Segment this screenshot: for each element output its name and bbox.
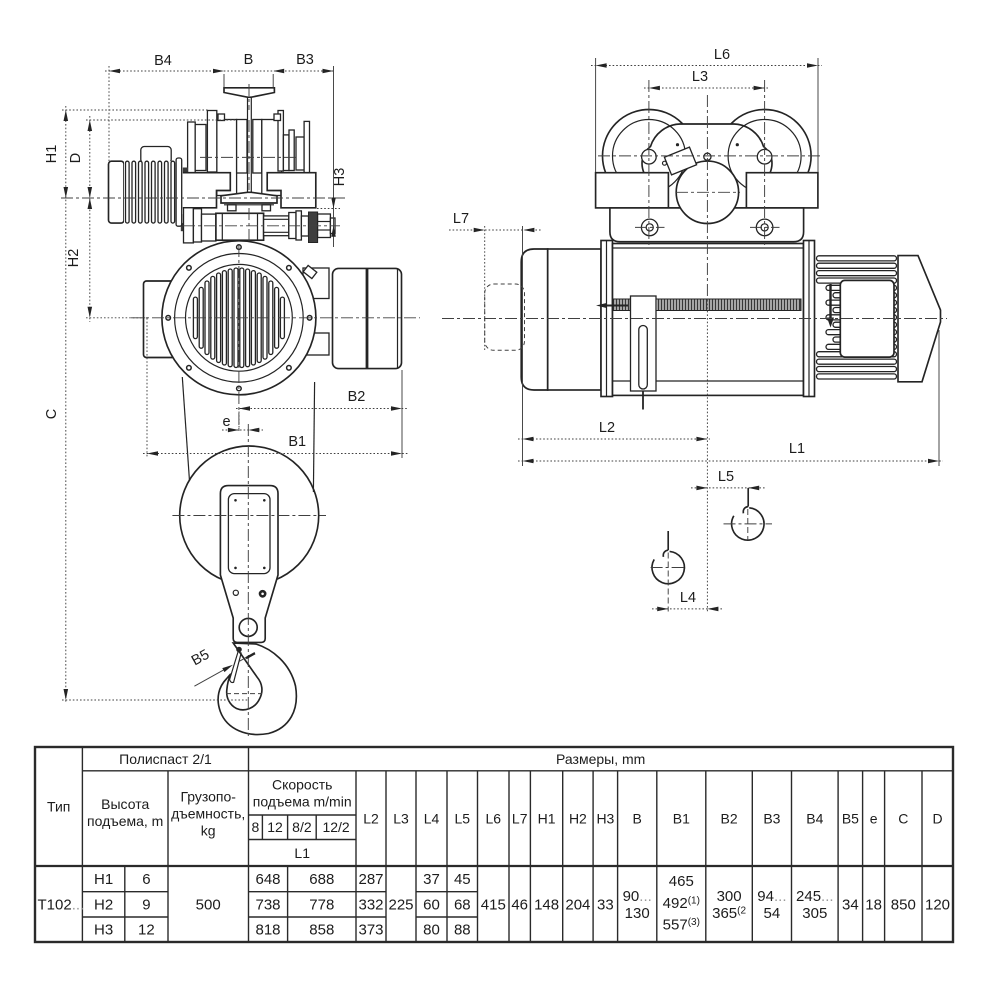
- svg-text:90...: 90...: [623, 888, 652, 905]
- svg-text:Тип: Тип: [47, 799, 70, 815]
- svg-text:H3: H3: [596, 811, 614, 827]
- svg-text:332: 332: [358, 896, 383, 913]
- svg-text:45: 45: [454, 871, 471, 888]
- svg-text:H2: H2: [569, 811, 587, 827]
- svg-text:850: 850: [891, 896, 916, 913]
- svg-text:225: 225: [388, 896, 413, 913]
- svg-text:818: 818: [255, 922, 280, 939]
- svg-text:648: 648: [255, 871, 280, 888]
- svg-text:D: D: [932, 811, 942, 827]
- svg-text:37: 37: [423, 871, 440, 888]
- svg-text:8/2: 8/2: [292, 819, 312, 835]
- svg-text:287: 287: [358, 871, 383, 888]
- svg-text:L6: L6: [486, 811, 502, 827]
- svg-text:858: 858: [309, 922, 334, 939]
- svg-text:130: 130: [625, 905, 650, 922]
- svg-text:L3: L3: [692, 69, 708, 85]
- svg-text:L1: L1: [294, 845, 310, 861]
- svg-text:B5: B5: [842, 811, 859, 827]
- svg-text:738: 738: [255, 896, 280, 913]
- svg-text:D: D: [68, 153, 84, 163]
- svg-text:L2: L2: [599, 420, 615, 436]
- svg-text:688: 688: [309, 871, 334, 888]
- svg-text:L1: L1: [789, 441, 805, 457]
- svg-text:6: 6: [142, 871, 150, 888]
- svg-text:94...: 94...: [757, 888, 786, 905]
- svg-text:245...: 245...: [796, 888, 834, 905]
- svg-text:kg: kg: [201, 823, 216, 839]
- svg-text:B4: B4: [154, 53, 172, 69]
- svg-text:305: 305: [802, 905, 827, 922]
- svg-text:L5: L5: [455, 811, 471, 827]
- svg-text:L6: L6: [714, 47, 730, 63]
- svg-text:778: 778: [309, 896, 334, 913]
- svg-text:H3: H3: [332, 168, 348, 187]
- svg-text:46: 46: [511, 896, 528, 913]
- svg-text:34: 34: [842, 896, 859, 913]
- svg-text:B2: B2: [348, 389, 366, 405]
- svg-text:e: e: [222, 414, 230, 430]
- svg-text:500: 500: [196, 896, 221, 913]
- svg-text:H3: H3: [94, 922, 113, 939]
- svg-text:L2: L2: [363, 811, 379, 827]
- svg-text:C: C: [898, 811, 908, 827]
- svg-text:подъема, m: подъема, m: [87, 813, 163, 829]
- svg-text:Грузопо-: Грузопо-: [180, 789, 236, 805]
- svg-text:9: 9: [142, 896, 150, 913]
- svg-text:415: 415: [481, 896, 506, 913]
- svg-text:H1: H1: [94, 871, 113, 888]
- svg-text:12: 12: [138, 922, 155, 939]
- svg-text:H1: H1: [44, 145, 60, 164]
- svg-text:465: 465: [669, 873, 694, 890]
- svg-text:80: 80: [423, 922, 440, 939]
- svg-text:L3: L3: [393, 811, 409, 827]
- svg-text:B1: B1: [673, 811, 690, 827]
- svg-text:204: 204: [565, 896, 590, 913]
- svg-text:L4: L4: [680, 590, 696, 606]
- svg-text:120: 120: [925, 896, 950, 913]
- svg-text:12/2: 12/2: [322, 819, 349, 835]
- svg-text:8: 8: [252, 819, 260, 835]
- svg-text:300: 300: [717, 888, 742, 905]
- svg-text:Высота: Высота: [101, 796, 149, 812]
- svg-text:B3: B3: [763, 811, 780, 827]
- svg-text:H2: H2: [66, 249, 82, 268]
- svg-text:373: 373: [358, 922, 383, 939]
- svg-text:Полиспаст 2/1: Полиспаст 2/1: [119, 751, 212, 767]
- svg-text:B3: B3: [296, 52, 314, 68]
- svg-text:L5: L5: [718, 469, 734, 485]
- svg-text:18: 18: [865, 896, 882, 913]
- svg-text:88: 88: [454, 922, 471, 939]
- svg-text:B: B: [244, 52, 254, 68]
- svg-text:Размеры, mm: Размеры, mm: [556, 751, 645, 767]
- svg-text:L7: L7: [512, 811, 528, 827]
- svg-text:L7: L7: [453, 211, 469, 227]
- svg-text:68: 68: [454, 896, 471, 913]
- svg-text:148: 148: [534, 896, 559, 913]
- svg-text:60: 60: [423, 896, 440, 913]
- svg-text:H1: H1: [538, 811, 556, 827]
- svg-text:H2: H2: [94, 896, 113, 913]
- svg-text:B4: B4: [806, 811, 823, 827]
- svg-text:подъема m/min: подъема m/min: [253, 794, 352, 810]
- svg-text:54: 54: [764, 905, 781, 922]
- svg-text:Т102...: Т102...: [38, 896, 85, 913]
- svg-text:B: B: [633, 811, 642, 827]
- svg-text:33: 33: [597, 896, 614, 913]
- svg-text:C: C: [44, 409, 60, 419]
- svg-text:L4: L4: [424, 811, 440, 827]
- svg-text:12: 12: [267, 819, 283, 835]
- svg-text:Скорость: Скорость: [272, 777, 332, 793]
- svg-text:e: e: [870, 811, 878, 827]
- svg-text:B2: B2: [721, 811, 738, 827]
- svg-text:дъемность,: дъемность,: [171, 806, 245, 822]
- svg-text:B1: B1: [288, 434, 306, 450]
